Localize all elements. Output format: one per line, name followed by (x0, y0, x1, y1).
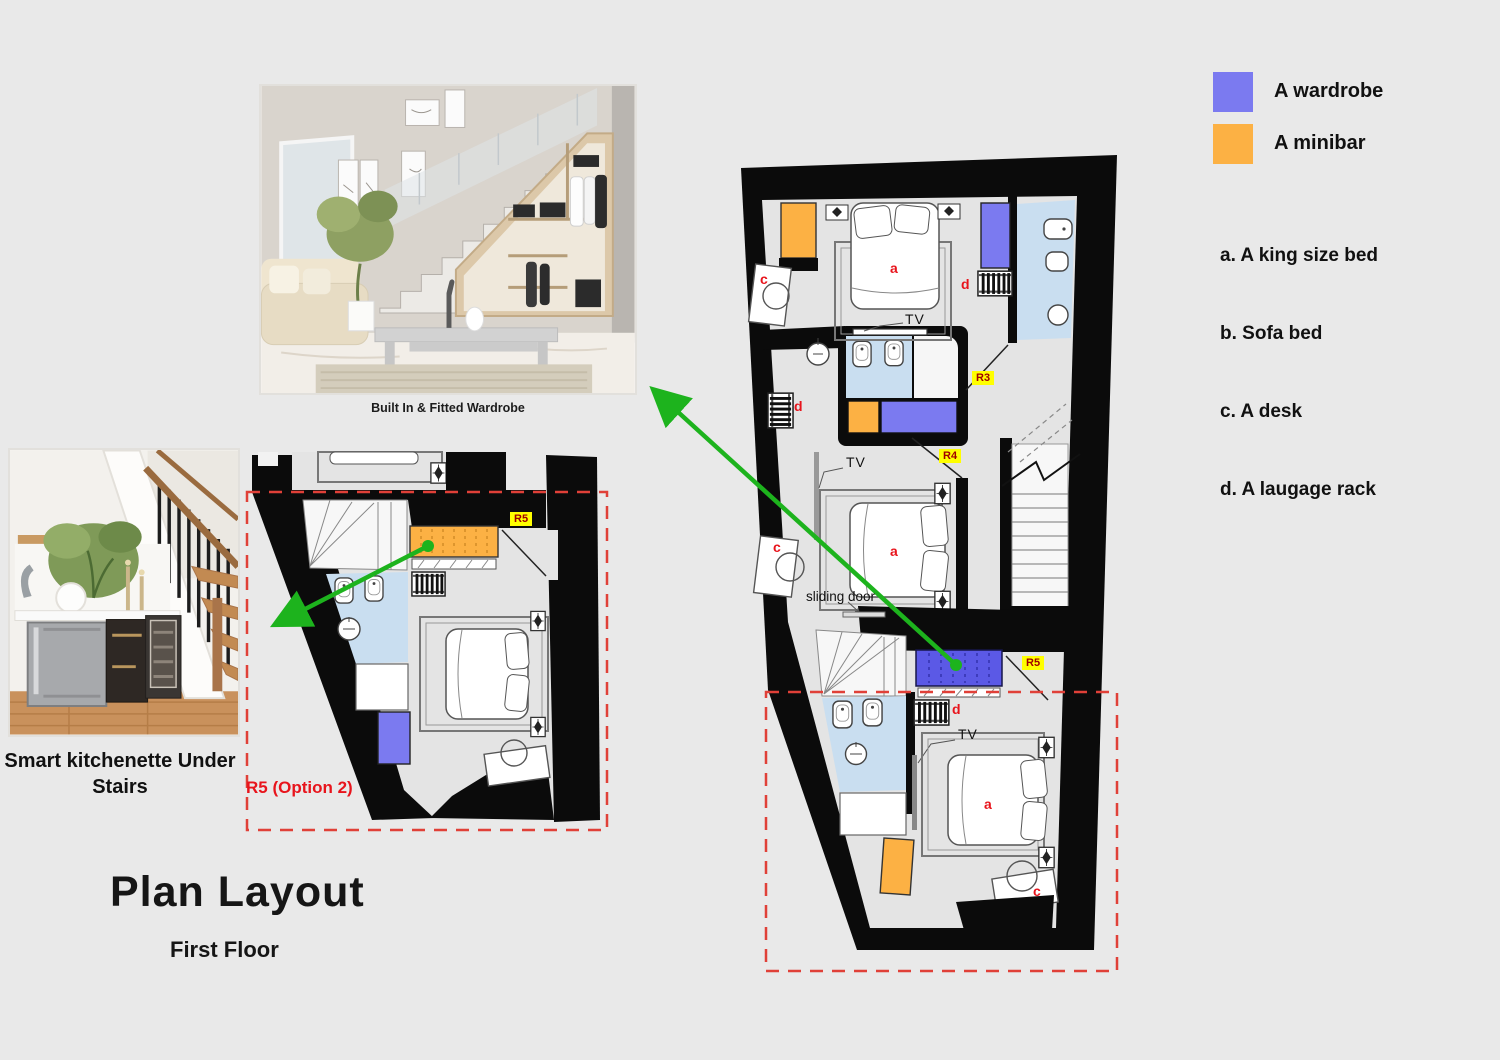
wardrobe-photo-illustration (261, 86, 635, 393)
bed-label-a-top: a (890, 260, 898, 276)
desk-label-c-middle: c (773, 539, 781, 555)
legend-swatch-wardrobe (1213, 72, 1253, 112)
bed-label-a-bottom: a (984, 796, 992, 812)
desk-label-c-bottom: c (1033, 883, 1041, 899)
desk-label-c-top: c (760, 271, 768, 287)
legend-item-c: c. A desk (1220, 399, 1378, 425)
rack-label-d-left: d (794, 398, 803, 414)
legend-item-b: b. Sofa bed (1220, 321, 1378, 347)
wardrobe-photo-caption: Built In & Fitted Wardrobe (259, 401, 637, 415)
kitchenette-photo-caption: Smart kitchenette Under Stairs (0, 748, 240, 800)
legend-label-wardrobe: A wardrobe (1274, 80, 1383, 103)
plan-layout-sheet: Built In & Fitted Wardrobe (0, 0, 1500, 1060)
legend-swatch-minibar (1213, 124, 1253, 164)
wardrobe-photo (259, 84, 637, 395)
page-title: Plan Layout (110, 868, 365, 917)
rack-label-d-top: d (961, 276, 970, 292)
room-tag-r3: R3 (972, 371, 994, 385)
legend-item-a: a. A king size bed (1220, 243, 1378, 269)
legend-items: a. A king size bed b. Sofa bed c. A desk… (1220, 191, 1378, 555)
kitchenette-photo-illustration (10, 450, 238, 735)
tv-label-room-middle: TV (846, 454, 866, 470)
main-floor-plan (741, 155, 1117, 950)
tv-label-room-top: TV (905, 311, 925, 327)
option2-title: R5 (Option 2) (246, 778, 353, 798)
room-tag-r5: R5 (1022, 656, 1044, 670)
page-subtitle: First Floor (170, 937, 279, 963)
legend-label-minibar: A minibar (1274, 132, 1366, 155)
kitchenette-photo (8, 448, 240, 737)
room-tag-r4: R4 (939, 449, 961, 463)
option2-floor-plan (252, 452, 600, 822)
legend-item-d: d. A laugage rack (1220, 477, 1378, 503)
bed-label-a-middle: a (890, 543, 898, 559)
sliding-door-label: sliding door (806, 589, 875, 604)
tv-label-room-bottom: TV (958, 726, 978, 742)
rack-label-d-bottom: d (952, 701, 961, 717)
room-tag-r5-option2: R5 (510, 512, 532, 526)
